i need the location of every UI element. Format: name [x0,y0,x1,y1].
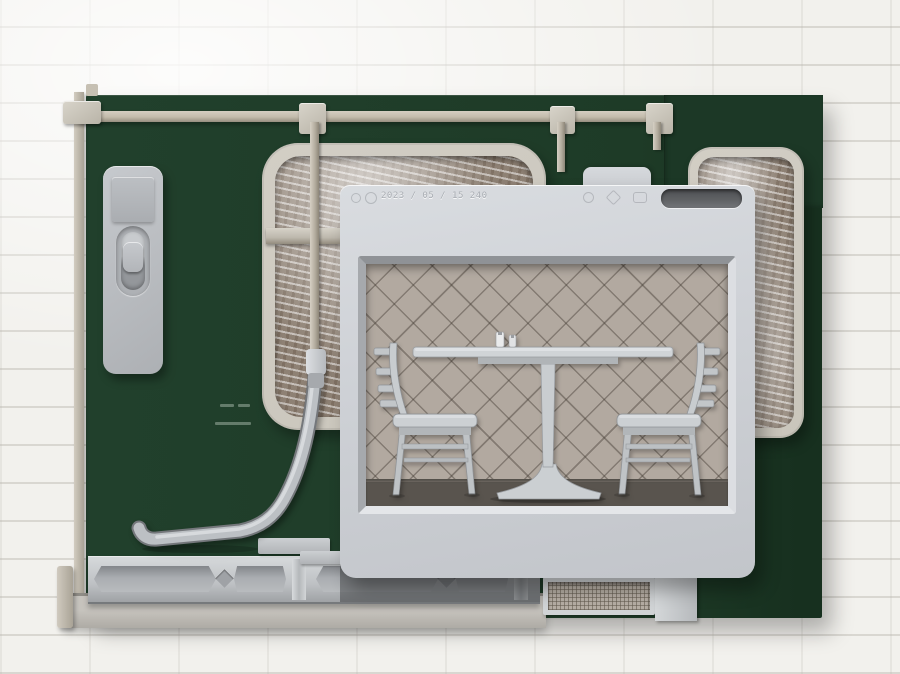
ladder-back-chair-left [374,343,480,498]
pipe-joint [308,373,324,388]
engraved-date-stamp: 2023 / 05 / 15 240 [381,191,488,201]
drop-rod [310,122,319,362]
diner-scene-lattice [366,264,728,506]
drop-rod [557,122,565,172]
embossed-icon [583,192,594,203]
rail-end-tab [86,84,98,96]
rail-bracket [63,101,101,124]
mold-stamp-icon [351,193,361,203]
top-rail [80,111,672,122]
handle-recess [116,226,150,296]
relief-panel: 2023 / 05 / 15 240 [340,185,755,578]
brick-wall-photo: 2023 / 05 / 15 240 [0,0,900,674]
handle-pad [112,177,154,222]
ladder-back-chair-right [614,343,720,498]
embossed-icon [633,192,647,203]
mesh-vent [543,577,655,615]
pepper-shaker [509,335,516,347]
vent-bracket [655,573,697,621]
base-endcap [57,566,73,628]
drop-rod [653,122,661,150]
mesh-grille [548,582,650,610]
mold-stamp-icon [365,192,377,204]
embossed-icon [606,190,622,206]
recessed-handle-slot [661,189,742,208]
scene-recess [358,256,736,514]
furniture-relief [366,264,728,506]
left-edge-rail [74,92,84,616]
pipe-coupling [306,349,326,375]
handle-latch [123,242,143,272]
salt-shaker [496,332,504,347]
